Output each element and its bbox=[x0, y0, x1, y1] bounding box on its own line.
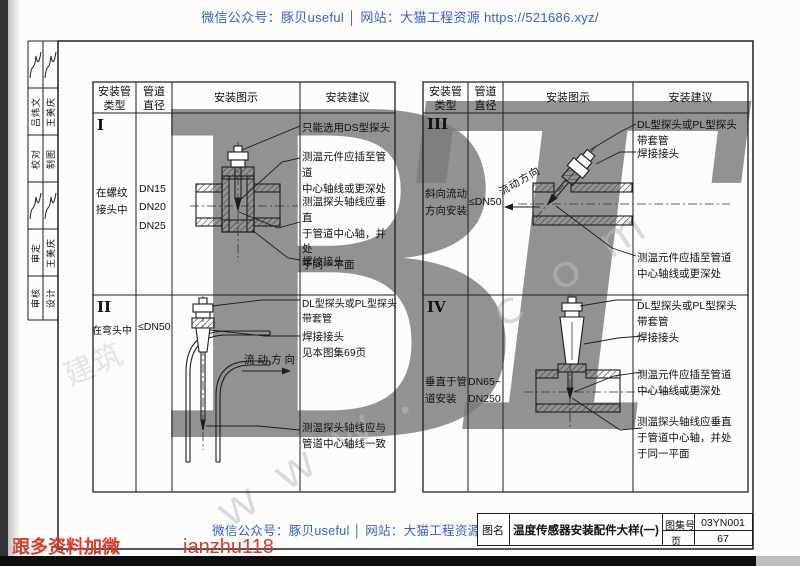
note-2-3: 测温探头轴线应与 管道中心轴线一致 bbox=[302, 421, 395, 453]
right-header-diameter: 管道 直径 bbox=[468, 86, 503, 114]
flow-label-2: 流动方向 bbox=[244, 352, 298, 367]
row-num-2: II bbox=[97, 298, 111, 316]
row-diameter-4: DN65~ DN250 bbox=[468, 374, 501, 409]
atlas-number: 03YN001 bbox=[695, 517, 751, 529]
page-number: 67 bbox=[695, 533, 751, 545]
right-header-advice: 安装建议 bbox=[633, 92, 748, 106]
atlas-number-label: 图集号 bbox=[665, 517, 695, 532]
row-num-4: IV bbox=[427, 298, 446, 316]
row-num-3: III bbox=[427, 115, 448, 133]
right-header-pipe-type: 安装管 类型 bbox=[423, 86, 468, 114]
watermark-cn: 建筑 bbox=[56, 330, 129, 395]
note-1-4: 螺纹接头 bbox=[302, 255, 395, 271]
note-2-2: 焊接接头 见本图集69页 bbox=[302, 330, 395, 362]
sidebar-label-drafted: 制图 bbox=[45, 137, 57, 181]
row-diameter-1: DN15 DN20 DN25 bbox=[139, 180, 166, 235]
scan-edge-strip bbox=[0, 0, 8, 566]
sidebar-name-2: 王美庆 bbox=[45, 90, 57, 134]
sidebar-name-1: 吕炜文 bbox=[30, 90, 42, 134]
note-3-2: 焊接接头 bbox=[637, 147, 748, 163]
sidebar-label-reviewed: 审核 bbox=[30, 276, 42, 320]
scan-bottom-bar-light bbox=[756, 556, 800, 566]
note-4-3: 测温元件应插至管道 中心轴线或更深处 bbox=[637, 368, 748, 400]
note-4-4: 测温探头轴线应垂直 于管道中心轴，并处 于同一平面 bbox=[637, 415, 748, 462]
left-header-diameter: 管道 直径 bbox=[136, 86, 172, 114]
note-3-1: DL型探头或PL型探头 带套管 bbox=[637, 118, 748, 150]
note-2-1: DL型探头或PL型探头 带套管 bbox=[302, 297, 398, 327]
note-1-1: 只能选用DS型探头 bbox=[302, 121, 395, 137]
title-block: 图名 温度传感器安装配件大样(一) 图集号 03YN001 页 67 bbox=[477, 513, 753, 546]
sidebar-name-3: 王美庆 bbox=[45, 231, 57, 275]
note-3-3: 测温元件应插至管道 中心轴线或更深处 bbox=[637, 251, 748, 283]
sidebar-label-proofread: 校对 bbox=[30, 137, 42, 181]
note-4-1: DL型探头或PL型探头 带套管 bbox=[637, 299, 748, 331]
drawing-name: 温度传感器安装配件大样(一) bbox=[512, 522, 660, 538]
left-header-pipe-type: 安装管 类型 bbox=[93, 86, 136, 114]
left-header-diagram: 安装图示 bbox=[172, 92, 300, 106]
left-header-advice: 安装建议 bbox=[300, 92, 395, 106]
row-type-3: 斜向流动 方向安装 bbox=[425, 186, 467, 220]
scanned-atlas-page: B T ｗｗｗ． ｃｏｍ 建筑 微信公众号：豚贝useful │ 网站：大猫工程… bbox=[0, 0, 800, 566]
note-4-2: 焊接接头 bbox=[637, 331, 748, 347]
row-type-4: 垂直于管 道安装 bbox=[425, 374, 467, 408]
drawing-name-label: 图名 bbox=[482, 522, 504, 538]
sidebar-label-designed: 设计 bbox=[45, 276, 57, 320]
row-num-1: I bbox=[97, 116, 104, 134]
note-1-2: 测温元件应插至管道 中心轴线或更深处 bbox=[302, 150, 395, 197]
sidebar-label-approved: 审定 bbox=[30, 231, 42, 275]
row-type-1: 在螺纹 接头中 bbox=[96, 185, 128, 219]
row-diameter-3: ≤DN50 bbox=[469, 196, 502, 208]
right-header-diagram: 安装图示 bbox=[503, 92, 633, 106]
top-banner-text: 微信公众号：豚贝useful │ 网站：大猫工程资源 https://52168… bbox=[0, 7, 800, 26]
page-label: 页 bbox=[671, 533, 681, 548]
row-diameter-2: ≤DN50 bbox=[138, 321, 171, 333]
row-type-2: 在弯头中 bbox=[92, 322, 132, 337]
sidebar-signatures bbox=[30, 52, 56, 219]
title-block-divider bbox=[509, 514, 510, 545]
scan-edge-shadow bbox=[8, 0, 20, 566]
scan-bottom-bar bbox=[0, 556, 756, 566]
